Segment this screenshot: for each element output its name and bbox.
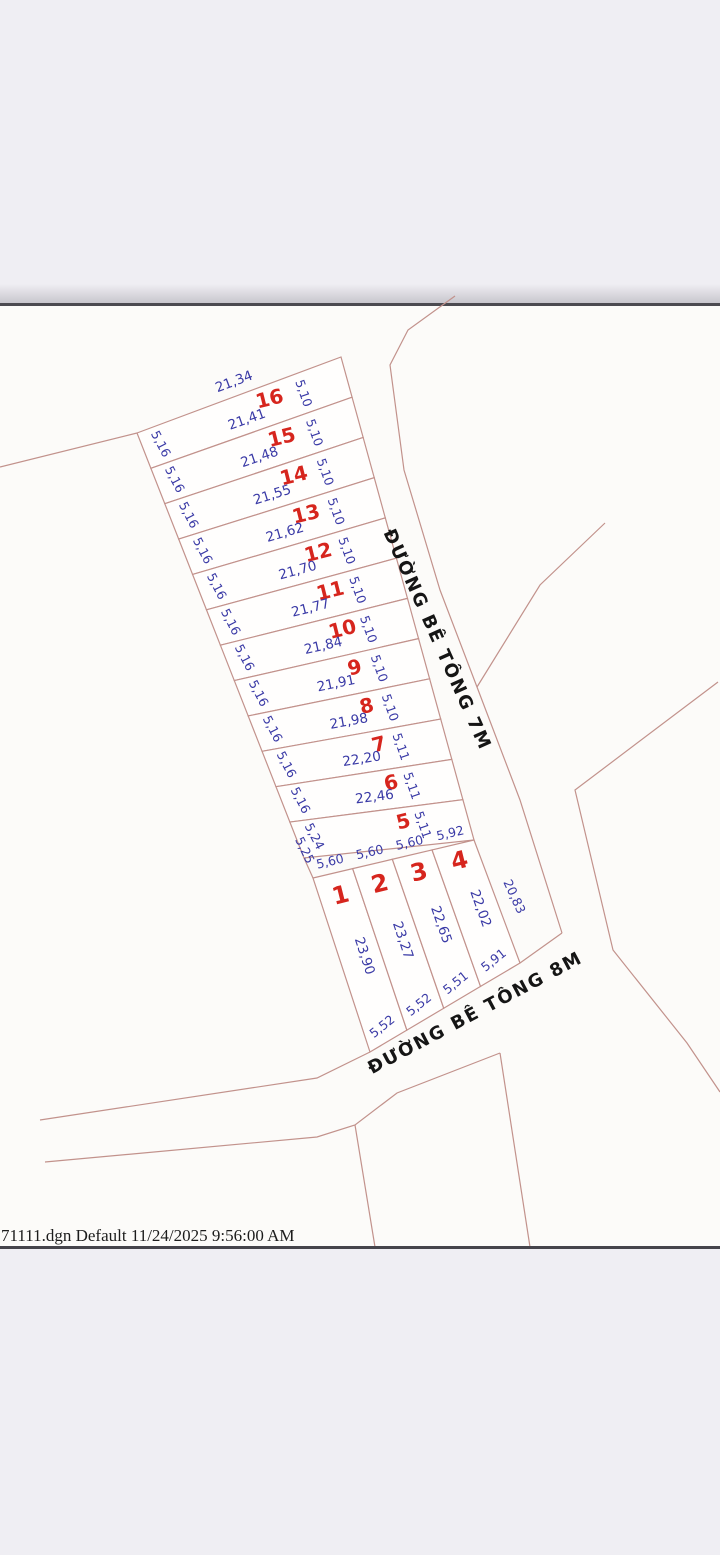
file-info-text: 71111.dgn Default 11/24/2025 9:56:00 AM xyxy=(1,1226,501,1246)
road8m-lower-edge xyxy=(45,1053,500,1162)
west-boundary-extension xyxy=(0,433,137,467)
page-bottom-border xyxy=(0,1246,720,1249)
cadastral-plan-svg: 21,34165,105,1621,41155,105,1621,48145,1… xyxy=(0,0,720,1555)
screen: 21,34165,105,1621,41155,105,1621,48145,1… xyxy=(0,0,720,1555)
road-south-east-edge xyxy=(500,1053,530,1247)
east-boundary xyxy=(575,682,720,1092)
road8m-upper-edge-west xyxy=(40,1052,370,1120)
parcel-branch-ne xyxy=(477,523,605,687)
plot-4-right-length-label: 20,83 xyxy=(500,877,528,916)
